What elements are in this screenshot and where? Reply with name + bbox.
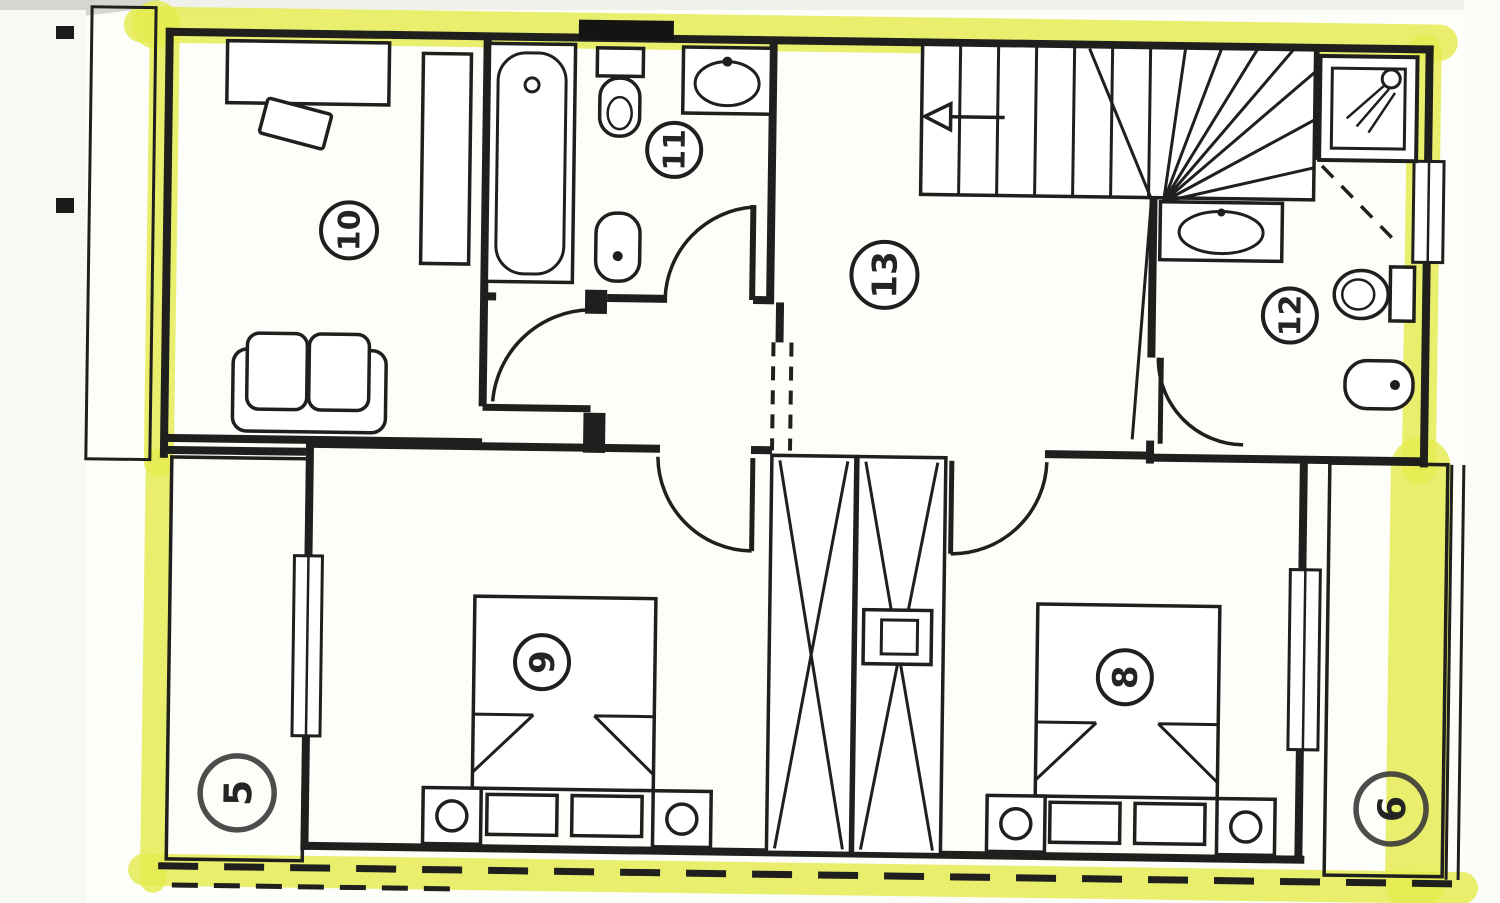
terrace-number: 5 (216, 779, 260, 806)
room-label-10: 10 (321, 202, 378, 259)
bidet (595, 213, 640, 282)
sofa (232, 333, 386, 433)
room-number: 11 (657, 129, 693, 171)
room-number: 9 (523, 650, 563, 674)
double-bed (472, 596, 656, 791)
scan-margin-right (1464, 0, 1500, 903)
room-number: 8 (1106, 665, 1146, 689)
room-label-11: 11 (647, 123, 702, 178)
scan-mark (56, 198, 74, 213)
toilet (596, 48, 643, 137)
washbasin (1160, 202, 1283, 262)
washbasin (683, 47, 772, 114)
desk (227, 41, 390, 105)
nightstand (986, 795, 1045, 852)
room-label-13: 13 (851, 241, 918, 308)
shower-cabin (1319, 56, 1417, 161)
floorplan-drawing: 10 (0, 0, 1500, 903)
nightstand (1216, 799, 1275, 856)
floorplan-scan: 10 (0, 0, 1500, 903)
toilet (1334, 266, 1415, 321)
pillow (487, 794, 558, 835)
nightstand (652, 791, 711, 848)
room-number: 10 (332, 209, 368, 251)
bathtub (486, 43, 575, 282)
pillow (1135, 803, 1206, 844)
closets (766, 455, 946, 854)
scan-mark (56, 26, 74, 39)
nightstand (422, 787, 481, 844)
room-number: 12 (1273, 294, 1309, 336)
wardrobe (421, 53, 472, 264)
bidet (1345, 360, 1414, 409)
pillow (572, 796, 643, 837)
room-label-9: 9 (515, 635, 570, 690)
scan-margin-left (0, 10, 86, 903)
top-wall-window (579, 20, 674, 41)
room-number: 13 (865, 251, 906, 299)
room-label-8: 8 (1097, 650, 1152, 705)
terrace-number: 6 (1370, 795, 1414, 822)
room-label-12: 12 (1263, 288, 1318, 343)
pillow (1050, 802, 1121, 843)
